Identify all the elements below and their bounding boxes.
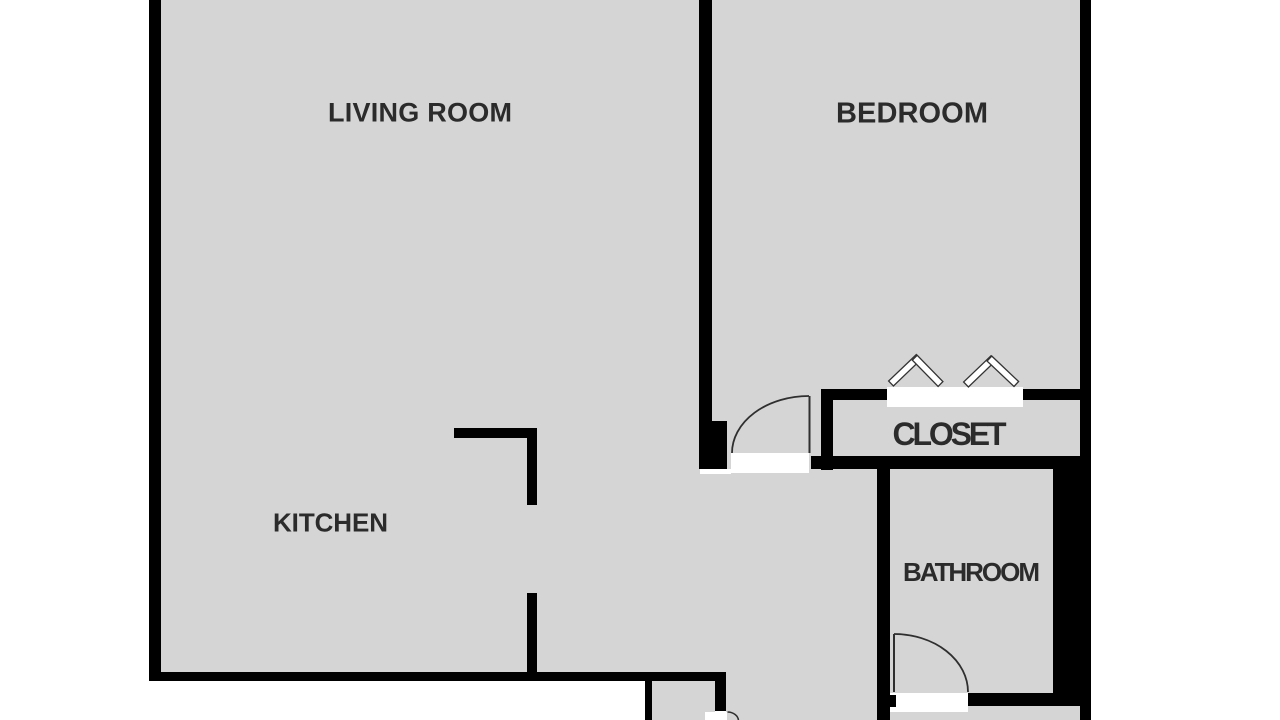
svg-text:BEDROOM: BEDROOM [836, 98, 988, 130]
svg-text:LIVING ROOM: LIVING ROOM [328, 98, 512, 128]
svg-text:CLOSET: CLOSET [893, 416, 1007, 452]
svg-text:KITCHEN: KITCHEN [273, 508, 388, 538]
svg-text:BATHROOM: BATHROOM [903, 557, 1040, 587]
